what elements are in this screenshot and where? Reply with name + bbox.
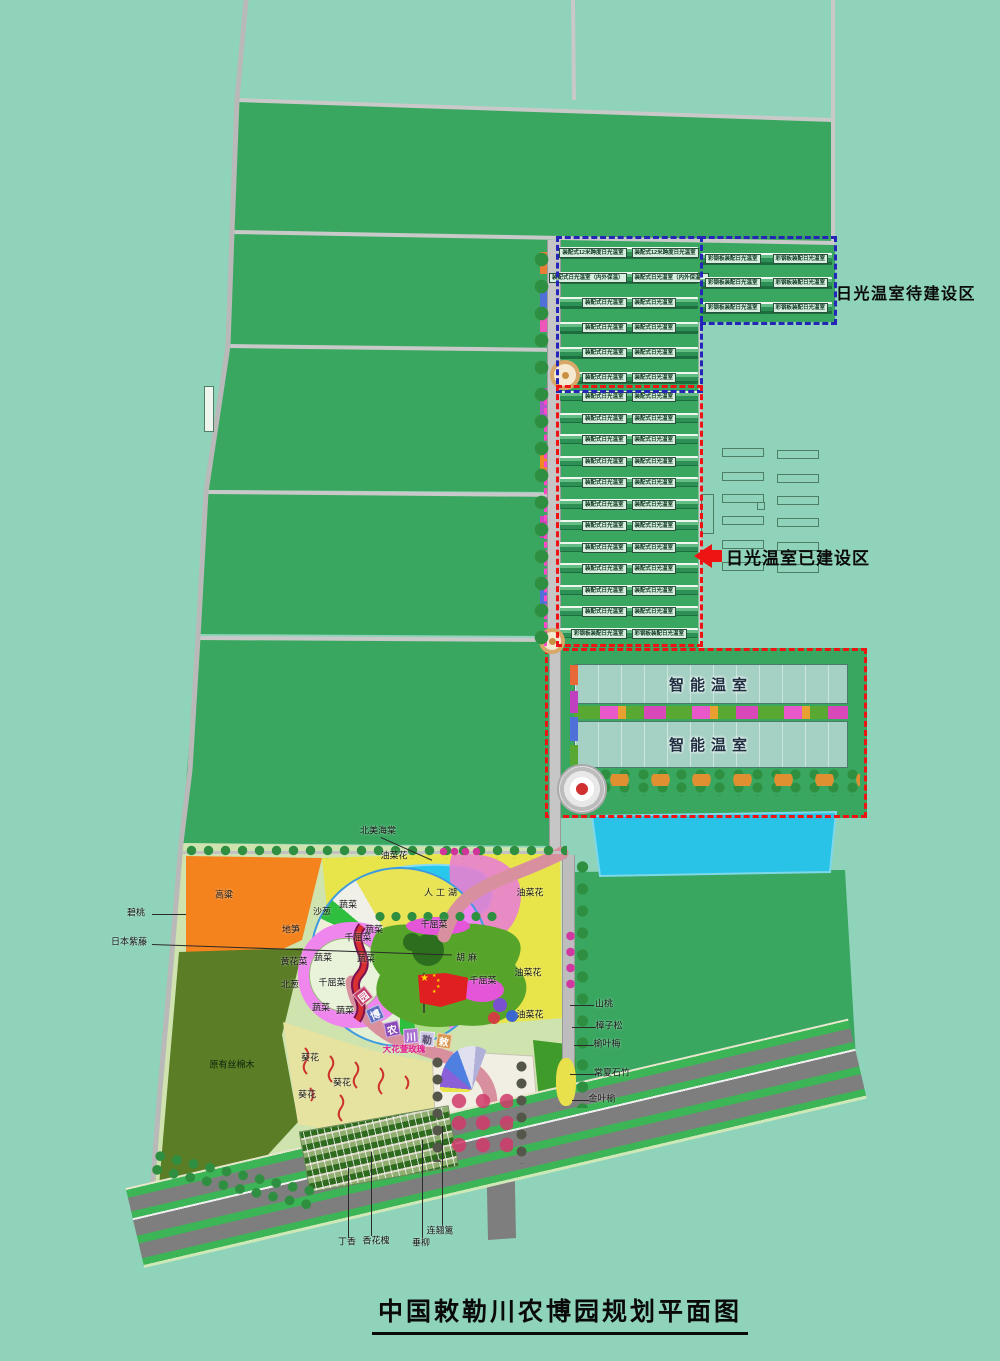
tree-row	[183, 844, 567, 859]
leader-line	[152, 914, 186, 915]
greenhouse-row: 装配式日光温室装配式日光温室	[560, 432, 700, 454]
built-zone-callout: 日光温室已建设区	[726, 544, 870, 569]
greenhouse-label-pill: 装配式日光温室（内外保温）	[549, 273, 627, 283]
greenhouse-label-pill: 装配式日光温室	[582, 586, 627, 596]
park-label: 原有丝棉木	[209, 1058, 254, 1071]
sorghum-field	[186, 856, 322, 956]
greenhouse-label-pill: 装配式日光温室	[632, 564, 677, 574]
park-label: 地笋	[282, 923, 300, 936]
park-label: 垂柳	[412, 1236, 430, 1249]
park-label: 香花槐	[362, 1234, 389, 1247]
greenhouse-row: 装配式日光温室装配式日光温室	[560, 343, 700, 368]
greenhouse-label-pill: 装配式日光温室	[632, 373, 677, 383]
greenhouse-row: 装配式日光温室装配式日光温室	[560, 411, 700, 433]
building-outline	[777, 474, 819, 483]
greenhouse-label-pill: 装配式日光温室	[582, 323, 627, 333]
field-plot	[181, 638, 560, 846]
greenhouse-road	[547, 240, 561, 652]
greenhouse-label-pill: 彩钢板装配日光温室	[705, 254, 761, 264]
flower-strip	[570, 665, 578, 685]
greenhouse-label-pill: 装配式日光温室	[632, 392, 677, 402]
building-outline	[722, 472, 764, 481]
greenhouse-road	[549, 652, 561, 852]
building-outline	[777, 518, 819, 527]
greenhouse-row: 彩钢板装配日光温室彩钢板装配日光温室	[701, 249, 834, 273]
shrub-row	[565, 928, 576, 992]
greenhouse-label-pill: 装配式日光温室	[632, 348, 677, 358]
park-label: 日本紫藤	[111, 935, 147, 948]
greenhouse-label-pill: 装配式日光温室	[632, 457, 677, 467]
flag-star: ★	[432, 989, 436, 995]
building-outline	[777, 496, 819, 505]
greenhouse-label-pill: 装配式日光温室	[582, 478, 627, 488]
park-label: 碧桃	[127, 906, 145, 919]
greenhouse-label-pill: 装配式日光温室	[582, 521, 627, 531]
tree-row	[576, 856, 589, 1108]
greenhouse-row: 装配式日光温室装配式日光温室	[560, 454, 700, 476]
smart-greenhouse-label: 智能温室	[669, 734, 753, 755]
building-outline	[722, 494, 764, 503]
greenhouse-label-pill: 装配式日光温室	[582, 564, 627, 574]
greenhouse-label-pill: 装配式日光温室	[582, 607, 627, 617]
blue-right-rows: 彩钢板装配日光温室彩钢板装配日光温室彩钢板装配日光温室彩钢板装配日光温室彩钢板装…	[701, 249, 834, 322]
greenhouse-label-pill: 装配式日光温室	[582, 435, 627, 445]
fountain-plaza	[557, 764, 607, 814]
park-label: 北美海棠	[360, 824, 396, 837]
greenhouse-row: 装配式日光温室装配式日光温室	[560, 497, 700, 519]
greenhouse-label-pill: 装配式日光温室	[632, 543, 677, 553]
greenhouse-row: 装配式日光温室（内外保温）装配式日光温室（内外保温）	[560, 268, 700, 293]
greenhouse-label-pill: 彩钢板装配日光温室	[705, 278, 761, 288]
greenhouse-row: 装配式日光温室装配式日光温室	[560, 583, 700, 605]
park-label: 榆叶梅	[593, 1037, 620, 1050]
smart-greenhouse-label: 智能温室	[669, 674, 753, 695]
flower-bed	[506, 1010, 518, 1022]
greenhouse-label-pill: 装配式日光温室	[632, 586, 677, 596]
planned-zone-callout: 日光温室待建设区	[836, 280, 976, 304]
map-title: 中国敕勒川农博园规划平面图	[372, 1292, 748, 1335]
park-label: 葵花	[301, 1051, 319, 1064]
tree-row	[430, 1054, 445, 1162]
greenhouse-label-pill: 装配式日光温室	[632, 500, 677, 510]
greenhouse-label-pill: 彩钢板装配日光温室	[705, 303, 761, 313]
park-label: 山桃	[595, 997, 613, 1010]
built-zone-arrow-icon	[694, 544, 712, 568]
park-label: 丁香	[338, 1235, 356, 1248]
building-outline	[777, 450, 819, 459]
greenhouse-label-pill: 装配式日光温室	[632, 435, 677, 445]
greenhouse-row: 装配式日光温室装配式日光温室	[560, 604, 700, 626]
tree-row	[534, 246, 549, 650]
field-plot	[198, 492, 560, 636]
greenhouse-label-pill: 装配式日光温室	[632, 298, 677, 308]
park-label: 葵花	[298, 1088, 316, 1101]
greenhouse-label-pill: 装配式日光温室	[632, 521, 677, 531]
greenhouse-label-pill: 装配式日光温室（内外保温）	[632, 273, 710, 283]
golden-elm-patch	[556, 1058, 576, 1106]
west-boundary-road	[151, 0, 246, 1205]
tree-row	[514, 1058, 529, 1164]
built-zone-arrow-icon	[711, 550, 722, 562]
smart-greenhouse-block: 智能温室	[574, 721, 848, 768]
greenhouse-label-pill: 彩钢板装配日光温室	[773, 278, 829, 288]
flower-strip	[570, 691, 578, 713]
flower-dots	[447, 1090, 513, 1156]
greenhouse-label-pill: 装配式日光温室	[582, 392, 627, 402]
building-outline	[722, 448, 764, 457]
park-label: 北葱	[281, 978, 299, 991]
greenhouse-row: 彩钢板装配日光温室彩钢板装配日光温室	[701, 298, 834, 322]
building-outline	[701, 494, 714, 534]
wheel-inner-circle	[309, 938, 383, 1012]
greenhouse-label-pill: 装配式日光温室	[582, 373, 627, 383]
park-label: 连翘篱	[426, 1224, 453, 1237]
field-plot	[228, 232, 560, 348]
greenhouse-label-pill: 装配式日光温室	[582, 500, 627, 510]
flower-strip	[570, 745, 578, 765]
greenhouse-row: 装配式12米跨度日光温室装配式12米跨度日光温室	[560, 243, 700, 268]
flag-star: ★	[436, 984, 440, 990]
greenhouse-label-pill: 装配式日光温室	[582, 414, 627, 424]
greenhouse-label-pill: 装配式日光温室	[632, 607, 677, 617]
park-label: 油菜花	[514, 966, 541, 979]
greenhouse-label-pill: 装配式日光温室	[632, 414, 677, 424]
park-label: 油菜花	[516, 886, 543, 899]
tree-row	[372, 910, 500, 923]
pink-tree-row	[438, 845, 480, 860]
greenhouse-row: 装配式日光温室装配式日光温室	[560, 475, 700, 497]
building-outline	[757, 502, 765, 510]
greenhouse-label-pill: 彩钢板装配日光温室	[632, 629, 688, 639]
greenhouse-row: 装配式日光温室装配式日光温室	[560, 389, 700, 411]
greenhouse-label-pill: 装配式日光温室	[582, 457, 627, 467]
field-plot	[206, 346, 560, 492]
sunflower-squiggles	[304, 1048, 409, 1121]
blue-left-rows: 装配式12米跨度日光温室装配式12米跨度日光温室装配式日光温室（内外保温）装配式…	[560, 243, 700, 393]
greenhouse-label-pill: 装配式12米跨度日光温室	[559, 248, 626, 258]
greenhouse-row: 装配式日光温室装配式日光温室	[560, 318, 700, 343]
water-body	[592, 812, 836, 876]
flower-bed	[493, 998, 507, 1012]
greenhouse-row: 装配式日光温室装配式日光温室	[560, 293, 700, 318]
greenhouse-label-pill: 装配式日光温室	[582, 298, 627, 308]
greenhouse-row: 彩钢板装配日光温室彩钢板装配日光温室	[560, 626, 700, 648]
plaza-fan-garden	[440, 1046, 504, 1092]
greenhouse-label-pill: 装配式日光温室	[582, 348, 627, 358]
building-outline	[204, 386, 214, 432]
map-canvas: 装配式12米跨度日光温室装配式12米跨度日光温室装配式日光温室（内外保温）装配式…	[0, 0, 1000, 1361]
park-label: 高粱	[215, 888, 233, 901]
building-outline	[722, 516, 764, 525]
greenhouse-label-pill: 彩钢板装配日光温室	[773, 254, 829, 264]
flower-bed	[488, 1012, 500, 1024]
greenhouse-row: 装配式日光温室装配式日光温室	[560, 561, 700, 583]
field-plot	[232, 100, 833, 243]
flower-strip	[570, 717, 578, 741]
flower-bed-strip	[574, 706, 848, 719]
greenhouse-row: 装配式日光温室装配式日光温室	[560, 518, 700, 540]
red-rows: 装配式日光温室装配式日光温室装配式日光温室装配式日光温室装配式日光温室装配式日光…	[560, 389, 700, 647]
park-label: 樟子松	[595, 1019, 622, 1032]
greenhouse-label-pill: 彩钢板装配日光温室	[773, 303, 829, 313]
greenhouse-row: 装配式日光温室装配式日光温室	[560, 540, 700, 562]
smart-greenhouse-block: 智能温室	[574, 664, 848, 704]
greenhouse-label-pill: 装配式日光温室	[632, 323, 677, 333]
greenhouse-label-pill: 装配式12米跨度日光温室	[632, 248, 699, 258]
park-label: 葵花	[333, 1076, 351, 1089]
roundabout	[550, 360, 580, 390]
park-label: 油菜花	[516, 1008, 543, 1021]
greenhouse-row: 彩钢板装配日光温室彩钢板装配日光温室	[701, 273, 834, 297]
greenhouse-label-pill: 装配式日光温室	[582, 543, 627, 553]
greenhouse-label-pill: 装配式日光温室	[632, 478, 677, 488]
greenhouse-label-pill: 彩钢板装配日光温室	[571, 629, 627, 639]
